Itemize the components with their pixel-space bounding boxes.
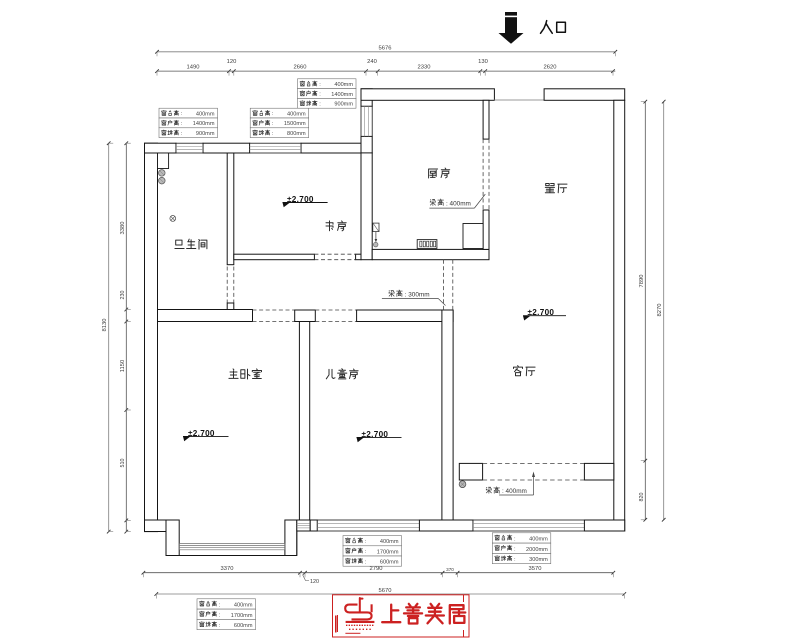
svg-text:1700mm: 1700mm (231, 613, 253, 619)
svg-text:120: 120 (310, 579, 319, 585)
svg-text:: 300mm: : 300mm (405, 291, 430, 298)
svg-text:8270: 8270 (657, 304, 663, 317)
svg-text:300mm: 300mm (529, 557, 548, 563)
svg-text:: 400mm: : 400mm (446, 200, 471, 207)
svg-text:1400mm: 1400mm (331, 92, 353, 98)
svg-text:1490: 1490 (187, 65, 200, 71)
svg-text:400mm: 400mm (380, 539, 399, 545)
svg-text:370: 370 (446, 567, 454, 572)
svg-text:900mm: 900mm (196, 131, 215, 137)
svg-text:400mm: 400mm (196, 111, 215, 117)
svg-text:3370: 3370 (221, 566, 234, 572)
svg-text:2330: 2330 (418, 65, 431, 71)
svg-text:130: 130 (478, 59, 488, 65)
svg-text:240: 240 (367, 59, 377, 65)
svg-text:510: 510 (120, 459, 126, 468)
svg-text:1700mm: 1700mm (377, 549, 399, 555)
svg-text:2660: 2660 (294, 65, 307, 71)
svg-text:: 400mm: : 400mm (502, 488, 527, 495)
svg-text:8130: 8130 (102, 319, 108, 332)
svg-text:800mm: 800mm (287, 131, 306, 137)
svg-text:400mm: 400mm (234, 603, 253, 609)
svg-text:1150: 1150 (120, 360, 126, 372)
svg-text:5676: 5676 (379, 46, 392, 52)
svg-text:2790: 2790 (370, 566, 383, 572)
svg-text:2620: 2620 (544, 65, 557, 71)
svg-text:600mm: 600mm (234, 623, 253, 629)
svg-text:400mm: 400mm (334, 82, 353, 88)
svg-text:600mm: 600mm (380, 560, 399, 566)
svg-text:5670: 5670 (379, 588, 392, 594)
svg-text:400mm: 400mm (287, 111, 306, 117)
svg-text:2000mm: 2000mm (526, 547, 548, 553)
svg-text:120: 120 (227, 59, 237, 65)
svg-text:230: 230 (120, 291, 126, 300)
svg-text:900mm: 900mm (334, 102, 353, 108)
svg-text:7890: 7890 (639, 275, 645, 288)
svg-text:1400mm: 1400mm (193, 121, 215, 127)
svg-text:820: 820 (639, 493, 645, 502)
svg-text:3380: 3380 (120, 222, 126, 235)
svg-text:3570: 3570 (529, 566, 542, 572)
svg-text:400mm: 400mm (529, 537, 548, 543)
svg-text:1500mm: 1500mm (284, 121, 306, 127)
